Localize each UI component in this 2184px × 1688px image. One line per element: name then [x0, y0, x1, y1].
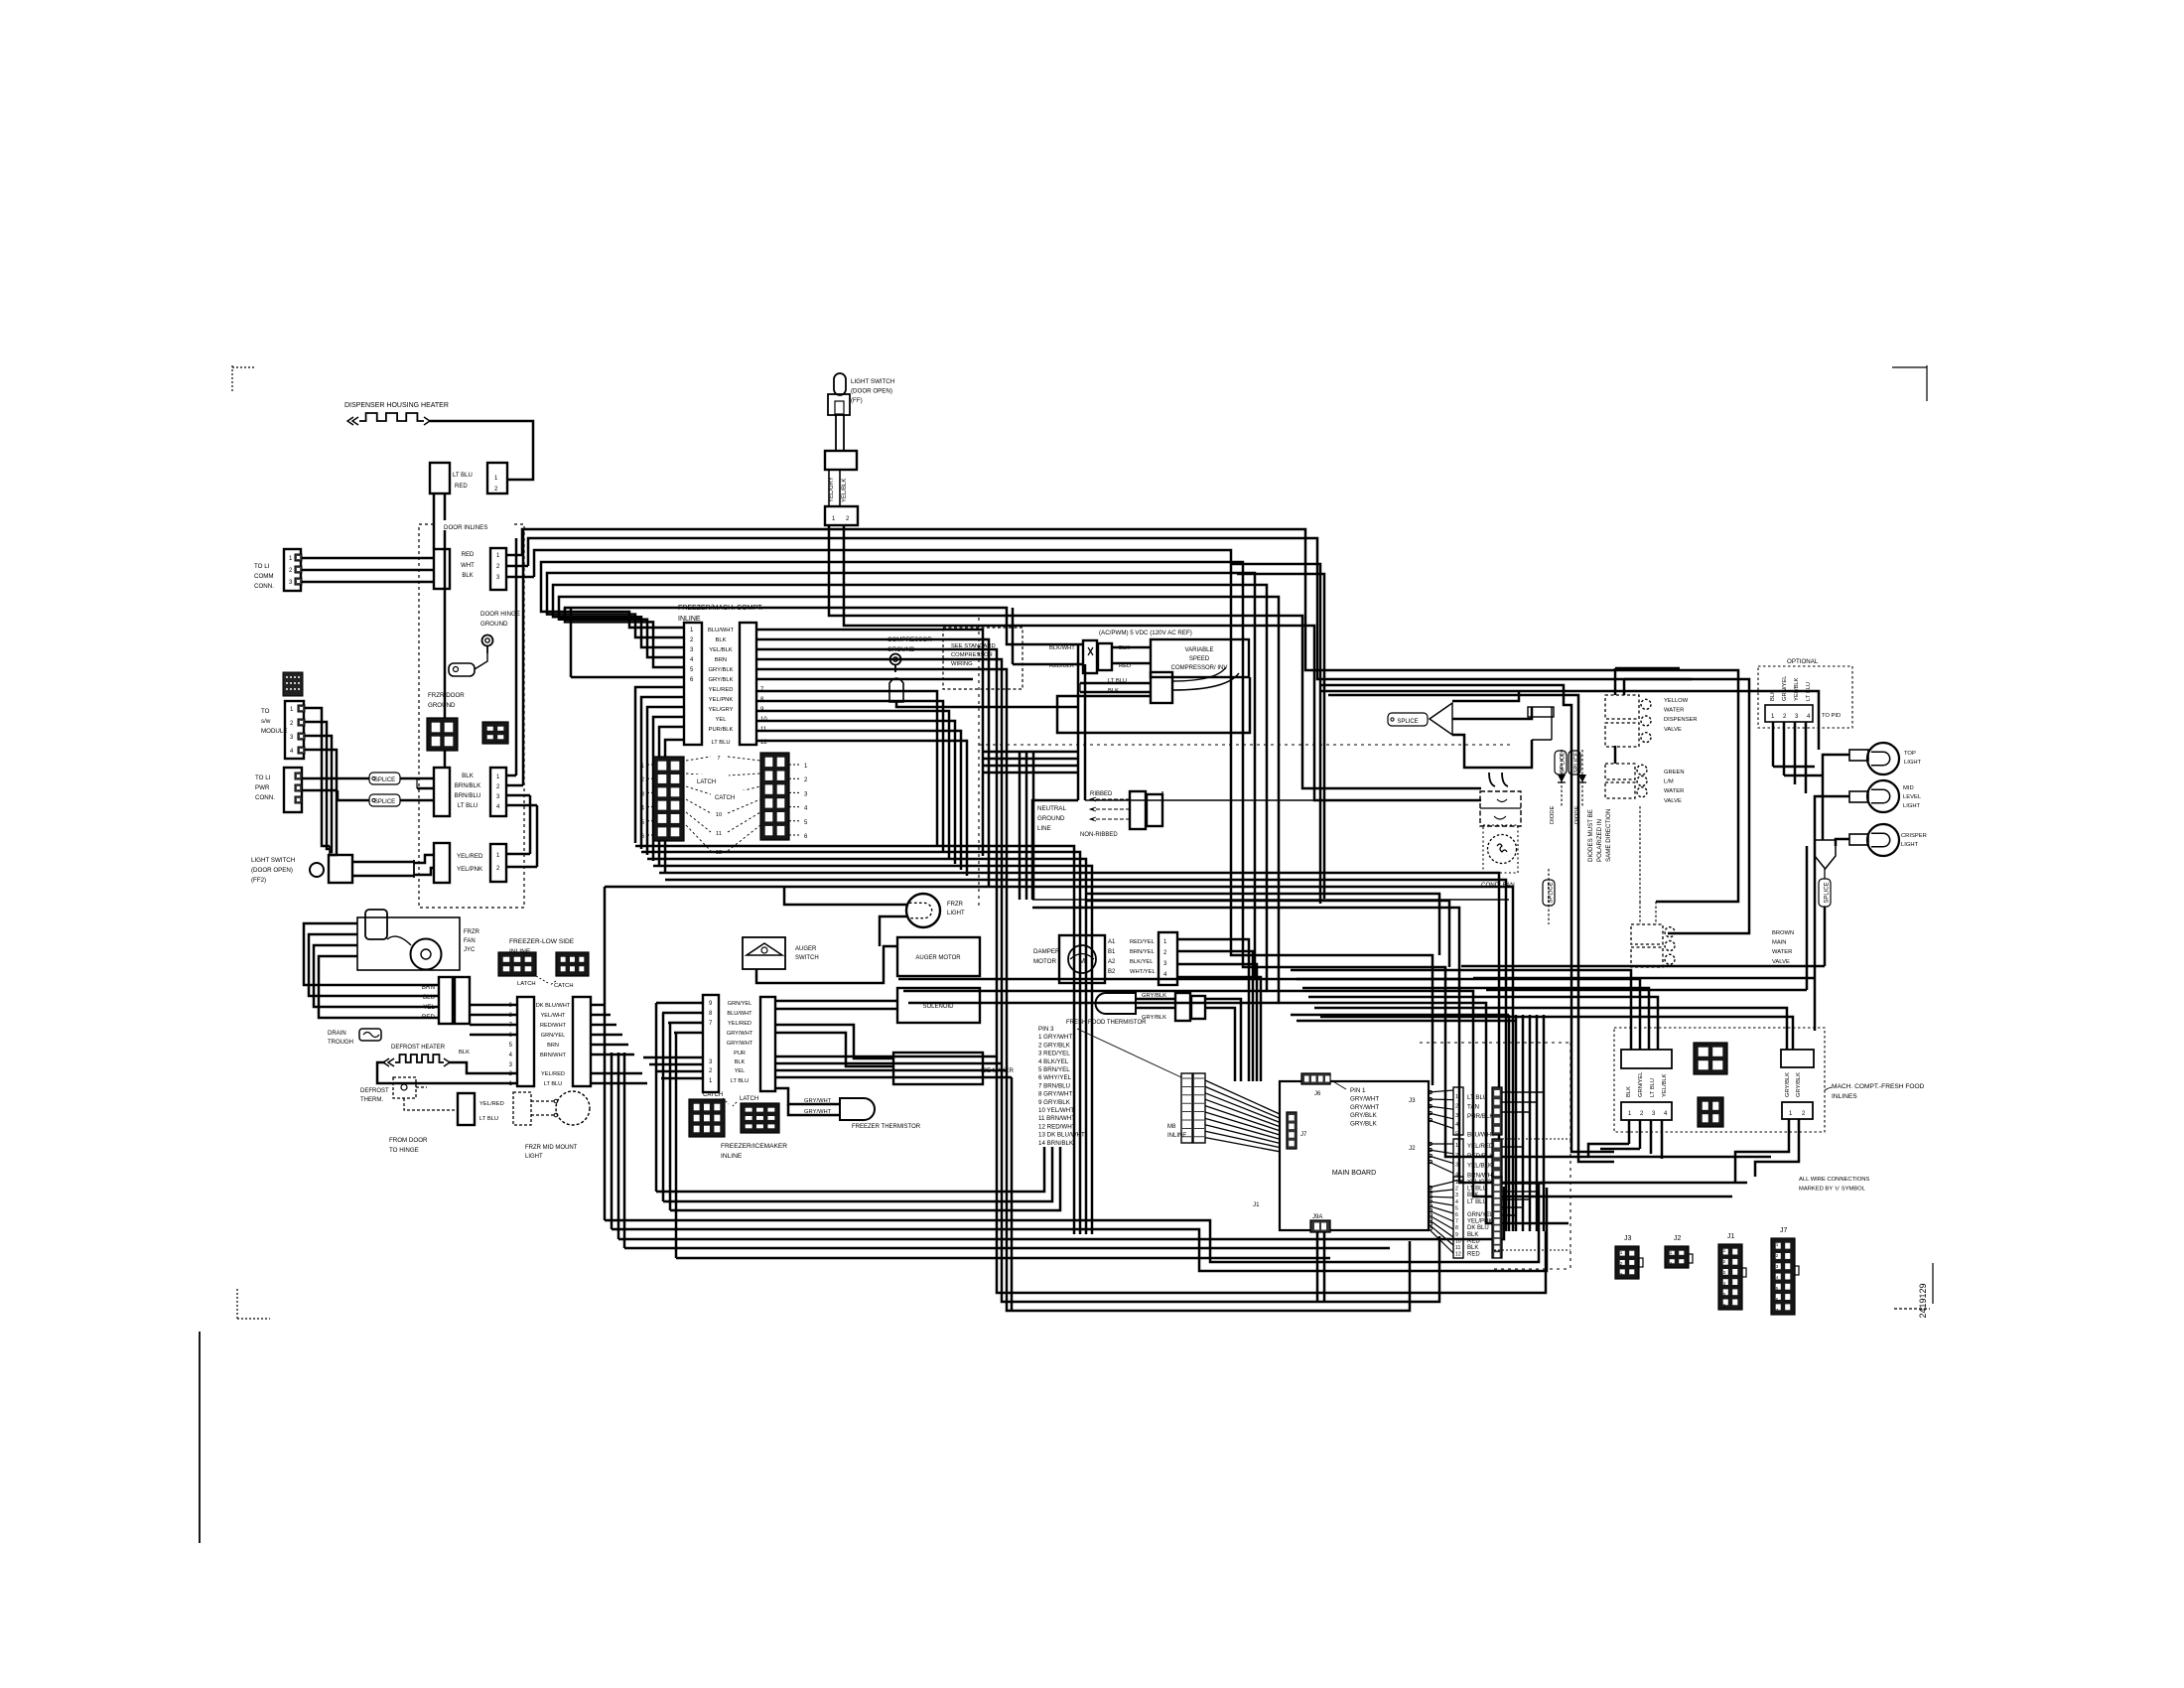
svg-text:10: 10 — [716, 812, 722, 818]
svg-text:PWR: PWR — [255, 784, 270, 791]
svg-text:SPLICE: SPLICE — [1574, 752, 1580, 773]
svg-text:6: 6 — [1455, 1212, 1458, 1218]
svg-text:BRN: BRN — [715, 657, 727, 663]
svg-text:LT BLU: LT BLU — [1650, 1078, 1656, 1097]
svg-text:POLARIZED IN: POLARIZED IN — [1596, 819, 1603, 862]
svg-text:MAIN BOARD: MAIN BOARD — [1332, 1170, 1376, 1177]
svg-text:(DOOR OPEN): (DOOR OPEN) — [851, 388, 892, 395]
svg-text:13 DK BLU/WHT: 13 DK BLU/WHT — [1038, 1132, 1085, 1139]
svg-text:10 YEL/WHT: 10 YEL/WHT — [1038, 1107, 1074, 1114]
svg-text:3 RED/YEL: 3 RED/YEL — [1038, 1051, 1070, 1057]
svg-text:PUR: PUR — [734, 1051, 746, 1056]
svg-text:DEFROST HEATER: DEFROST HEATER — [391, 1045, 446, 1051]
svg-text:GRY/BLK: GRY/BLK — [1785, 1072, 1791, 1097]
svg-text:SPLICE: SPLICE — [1561, 752, 1567, 773]
svg-text:FRESH FOOD THERMISTOR: FRESH FOOD THERMISTOR — [1066, 1020, 1147, 1026]
svg-text:INLINE: INLINE — [721, 1153, 743, 1160]
svg-text:BROWN: BROWN — [1772, 930, 1794, 936]
svg-text:SAME DIRECTION: SAME DIRECTION — [1605, 809, 1612, 862]
svg-text:BLK: BLK — [1626, 1086, 1632, 1097]
svg-text:J7: J7 — [1300, 1132, 1307, 1138]
svg-text:WHT/YEL: WHT/YEL — [1130, 969, 1157, 975]
svg-text:LIGHT SWITCH: LIGHT SWITCH — [851, 378, 894, 385]
svg-text:CATCH: CATCH — [715, 795, 735, 801]
svg-text:YEL/BLK: YEL/BLK — [842, 479, 848, 502]
svg-text:5: 5 — [1455, 1205, 1458, 1211]
svg-text:BRN: BRN — [422, 984, 435, 991]
svg-text:LT BLU: LT BLU — [1467, 1094, 1487, 1101]
svg-text:WATER: WATER — [1664, 788, 1684, 794]
svg-text:FREEZER-LOW SIDE: FREEZER-LOW SIDE — [509, 938, 575, 945]
svg-text:LT BLU: LT BLU — [1467, 1199, 1487, 1205]
svg-text:RIBBED: RIBBED — [1090, 791, 1113, 797]
svg-text:BLK/YEL: BLK/YEL — [1130, 959, 1154, 965]
svg-text:B2: B2 — [1108, 969, 1116, 975]
svg-text:YEL/GRY: YEL/GRY — [829, 477, 835, 502]
svg-text:J6: J6 — [1314, 1091, 1321, 1097]
svg-text:BLU/WHT: BLU/WHT — [727, 1011, 752, 1017]
svg-text:GRN/YEL: GRN/YEL — [541, 1033, 566, 1039]
svg-text:FRZR MID MOUNT: FRZR MID MOUNT — [525, 1145, 578, 1151]
svg-text:BLU: BLU — [423, 994, 435, 1001]
svg-text:LT BLU: LT BLU — [479, 1116, 498, 1122]
svg-text:BLU/WHT: BLU/WHT — [1467, 1132, 1495, 1139]
svg-text:B1: B1 — [1108, 949, 1116, 955]
svg-text:FRZR: FRZR — [464, 929, 480, 935]
svg-text:YEL/RED: YEL/RED — [457, 853, 483, 860]
svg-text:FRZR: FRZR — [947, 902, 964, 908]
svg-text:9: 9 — [1455, 1232, 1458, 1238]
svg-text:AUGER: AUGER — [795, 946, 817, 952]
svg-text:SPEED: SPEED — [1189, 656, 1210, 662]
svg-text:RED/BLK: RED/BLK — [1467, 1153, 1494, 1160]
svg-text:3: 3 — [1455, 1193, 1458, 1198]
svg-text:GRY/WHT: GRY/WHT — [1350, 1095, 1379, 1102]
svg-text:WATER: WATER — [1772, 949, 1792, 955]
svg-text:LEVEL: LEVEL — [1903, 794, 1922, 800]
svg-text:5: 5 — [1455, 1132, 1458, 1138]
svg-text:A2: A2 — [1108, 959, 1116, 965]
svg-text:LIGHT: LIGHT — [1903, 803, 1921, 809]
svg-text:s/w: s/w — [261, 718, 271, 725]
svg-text:DOOR INLINES: DOOR INLINES — [444, 524, 487, 531]
svg-text:YEL: YEL — [423, 1004, 435, 1011]
svg-text:RED: RED — [1467, 1252, 1480, 1258]
svg-text:DISPENSER: DISPENSER — [1664, 717, 1698, 723]
svg-text:MID: MID — [1903, 785, 1914, 791]
svg-text:FROM DOOR: FROM DOOR — [389, 1137, 428, 1144]
svg-text:CATCH: CATCH — [554, 983, 574, 989]
svg-text:GRY/BLK: GRY/BLK — [1142, 1015, 1166, 1021]
svg-text:BRN/BLK: BRN/BLK — [455, 782, 481, 789]
svg-text:CRISPER: CRISPER — [1901, 833, 1927, 839]
svg-text:14 BRN/BLK: 14 BRN/BLK — [1038, 1140, 1074, 1147]
svg-text:J2: J2 — [1674, 1235, 1682, 1242]
svg-text:4 BLK/YEL: 4 BLK/YEL — [1038, 1058, 1069, 1065]
svg-text:YEL/RED: YEL/RED — [541, 1071, 565, 1077]
svg-text:YEL: YEL — [735, 1068, 746, 1074]
svg-text:SPLICE: SPLICE — [374, 777, 395, 783]
svg-text:YEL/PNK: YEL/PNK — [457, 866, 483, 873]
svg-text:YEL/BLK: YEL/BLK — [709, 647, 733, 653]
svg-text:GRY/WHT: GRY/WHT — [727, 1041, 753, 1047]
svg-text:BRN/YEL: BRN/YEL — [1130, 949, 1156, 955]
svg-text:GRY/BLK: GRY/BLK — [1796, 1072, 1802, 1097]
svg-text:MOTOR: MOTOR — [1033, 958, 1056, 965]
svg-text:INLINE: INLINE — [1167, 1133, 1186, 1139]
svg-text:MAIN: MAIN — [1772, 940, 1787, 946]
svg-text:BLK/WHT: BLK/WHT — [1049, 645, 1075, 651]
svg-text:FREEZER/ICEMAKER: FREEZER/ICEMAKER — [721, 1143, 787, 1150]
svg-text:GRN/YEL: GRN/YEL — [1638, 1071, 1644, 1097]
svg-text:SPLICE: SPLICE — [1397, 719, 1418, 725]
svg-text:RED: RED — [1467, 1238, 1480, 1244]
svg-text:BLK: BLK — [462, 773, 475, 779]
svg-text:TO: TO — [261, 708, 270, 715]
svg-text:VARIABLE: VARIABLE — [1185, 647, 1214, 653]
svg-text:LIGHT: LIGHT — [1904, 760, 1922, 766]
svg-text:J3: J3 — [1624, 1235, 1632, 1242]
svg-text:RED: RED — [462, 552, 475, 558]
svg-text:SWITCH: SWITCH — [795, 955, 819, 961]
svg-text:LIGHT SWITCH: LIGHT SWITCH — [251, 857, 295, 864]
svg-text:LATCH: LATCH — [517, 981, 536, 987]
svg-text:DRAIN: DRAIN — [328, 1031, 346, 1037]
svg-text:1: 1 — [1455, 1094, 1458, 1100]
svg-text:TO HINGE: TO HINGE — [389, 1147, 419, 1154]
svg-text:6 WHY/YEL: 6 WHY/YEL — [1038, 1074, 1072, 1081]
svg-text:7: 7 — [1455, 1219, 1458, 1225]
svg-text:THERM.: THERM. — [360, 1097, 383, 1103]
svg-text:YEL: YEL — [716, 717, 728, 723]
svg-text:SEE STANDARD: SEE STANDARD — [951, 643, 996, 649]
svg-text:NON-RIBBED: NON-RIBBED — [1080, 832, 1118, 838]
svg-text:BLK: BLK — [1467, 1232, 1478, 1238]
svg-text:1 GRY/WHT: 1 GRY/WHT — [1038, 1034, 1072, 1041]
svg-text:RED/YEL: RED/YEL — [1130, 939, 1156, 945]
svg-text:J7: J7 — [1780, 1227, 1788, 1234]
svg-text:YEL/BLK: YEL/BLK — [1467, 1163, 1493, 1170]
svg-text:YEL/BLK: YEL/BLK — [1662, 1073, 1668, 1097]
svg-text:LT BLU: LT BLU — [453, 473, 473, 479]
svg-text:DAMPER: DAMPER — [1033, 948, 1060, 955]
svg-text:1: 1 — [1455, 1143, 1458, 1149]
svg-text:DIODES MUST BE: DIODES MUST BE — [1587, 809, 1594, 862]
svg-text:LT BLU: LT BLU — [731, 1078, 749, 1084]
svg-text:GRY/WHT: GRY/WHT — [727, 1031, 753, 1037]
svg-text:YEL/PNK: YEL/PNK — [709, 697, 734, 703]
svg-text:VALVE: VALVE — [1664, 727, 1682, 733]
svg-text:RED: RED — [422, 1014, 436, 1021]
svg-text:A1: A1 — [1108, 939, 1116, 945]
svg-text:BRN: BRN — [547, 1043, 559, 1049]
svg-text:BLK: BLK — [462, 573, 473, 579]
svg-text:YEL/RED: YEL/RED — [709, 687, 734, 693]
svg-text:BRN/BLU: BRN/BLU — [455, 792, 481, 799]
svg-text:CATCH: CATCH — [703, 1092, 723, 1098]
svg-text:DOOR HINGE: DOOR HINGE — [480, 611, 520, 618]
svg-text:LIGHT: LIGHT — [947, 911, 965, 916]
svg-text:11: 11 — [1455, 1245, 1460, 1251]
svg-text:TO LI: TO LI — [254, 563, 270, 570]
svg-text:DISPENSER HOUSING HEATER: DISPENSER HOUSING HEATER — [344, 402, 449, 409]
svg-text:8 GRY/WHT: 8 GRY/WHT — [1038, 1091, 1072, 1098]
svg-text:GRN/YEL: GRN/YEL — [1782, 675, 1788, 701]
svg-text:COND. FAN: COND. FAN — [1481, 882, 1515, 889]
svg-text:LATCH: LATCH — [740, 1096, 758, 1102]
svg-text:DK BLU/WHT: DK BLU/WHT — [536, 1003, 571, 1009]
svg-text:RED/WHT: RED/WHT — [540, 1023, 567, 1029]
svg-text:BLK: BLK — [1467, 1193, 1478, 1198]
svg-text:BLK: BLK — [716, 637, 727, 643]
svg-text:WATER: WATER — [1664, 708, 1684, 714]
svg-text:LIGHT: LIGHT — [1901, 842, 1919, 848]
svg-text:BRN/WHT: BRN/WHT — [540, 1053, 567, 1058]
svg-text:2: 2 — [1455, 1187, 1458, 1193]
svg-text:GROUND: GROUND — [428, 702, 456, 709]
svg-text:CONN.: CONN. — [254, 583, 274, 590]
svg-text:1: 1 — [1455, 1180, 1458, 1186]
svg-text:YEL/BLK: YEL/BLK — [1794, 677, 1800, 701]
svg-text:BLU/WHT: BLU/WHT — [708, 628, 735, 633]
svg-text:SPLICE: SPLICE — [374, 799, 395, 805]
svg-text:GRY/WHT: GRY/WHT — [1350, 1104, 1379, 1111]
svg-text:DK BLU: DK BLU — [1467, 1225, 1489, 1231]
svg-text:GRY/BLK: GRY/BLK — [1350, 1112, 1378, 1119]
svg-text:SPLICE: SPLICE — [1825, 882, 1831, 903]
svg-text:GRN/YEL: GRN/YEL — [728, 1001, 752, 1007]
svg-text:CONN.: CONN. — [255, 794, 275, 801]
svg-text:(FF): (FF) — [851, 397, 863, 404]
svg-text:M8: M8 — [1167, 1124, 1176, 1130]
svg-text:LATCH: LATCH — [697, 779, 716, 785]
svg-text:WHT: WHT — [461, 563, 475, 569]
svg-text:AUGER MOTOR: AUGER MOTOR — [915, 955, 961, 961]
svg-text:12: 12 — [1455, 1252, 1461, 1258]
svg-text:INLINES: INLINES — [1832, 1093, 1857, 1100]
svg-text:VALVE: VALVE — [1772, 959, 1790, 965]
svg-text:5 BRN/YEL: 5 BRN/YEL — [1038, 1066, 1070, 1073]
svg-text:GREEN: GREEN — [1664, 770, 1685, 775]
svg-text:LT BLU: LT BLU — [544, 1081, 562, 1087]
svg-text:YEL/RED: YEL/RED — [479, 1101, 504, 1107]
svg-text:TOP: TOP — [1904, 751, 1916, 757]
svg-text:GROUND: GROUND — [480, 621, 508, 628]
svg-text:2 GRY/BLK: 2 GRY/BLK — [1038, 1042, 1071, 1049]
svg-text:YEL/GRY: YEL/GRY — [708, 707, 733, 713]
svg-text:PUR/BLK: PUR/BLK — [709, 727, 734, 733]
svg-text:SPLICE: SPLICE — [1549, 882, 1555, 903]
svg-text:LIGHT: LIGHT — [525, 1154, 543, 1160]
svg-text:L/M: L/M — [1664, 779, 1674, 785]
svg-text:FREEZER THERMISTOR: FREEZER THERMISTOR — [852, 1124, 921, 1130]
svg-text:FRZR DOOR: FRZR DOOR — [428, 692, 465, 699]
svg-text:FREEZER/MACH. COMPT.: FREEZER/MACH. COMPT. — [678, 605, 763, 612]
svg-text:(DOOR OPEN): (DOOR OPEN) — [251, 867, 293, 874]
svg-text:RED: RED — [455, 484, 468, 490]
svg-text:OPTIONAL: OPTIONAL — [1787, 658, 1819, 665]
svg-text:2419129: 2419129 — [1918, 1283, 1928, 1318]
svg-text:LT BLU: LT BLU — [1467, 1187, 1487, 1193]
svg-text:10: 10 — [1455, 1238, 1461, 1244]
svg-text:J3: J3 — [1409, 1097, 1416, 1104]
svg-text:7: 7 — [717, 756, 720, 762]
svg-text:4: 4 — [1455, 1199, 1458, 1205]
svg-text:YEL/PNK: YEL/PNK — [1467, 1219, 1492, 1225]
svg-text:YEL/RED: YEL/RED — [1467, 1143, 1494, 1150]
svg-text:YEL/WHT: YEL/WHT — [541, 1013, 566, 1019]
svg-text:M: M — [1079, 958, 1085, 965]
svg-text:2: 2 — [1455, 1153, 1458, 1159]
svg-text:4: 4 — [1455, 1122, 1458, 1128]
svg-text:LT BLU: LT BLU — [711, 740, 730, 746]
svg-text:TO LI: TO LI — [255, 774, 271, 781]
svg-text:8: 8 — [1455, 1225, 1458, 1231]
svg-text:7 BRN/BLU: 7 BRN/BLU — [1038, 1082, 1070, 1089]
svg-text:MARKED BY 'o' SYMBOL: MARKED BY 'o' SYMBOL — [1799, 1187, 1866, 1193]
svg-text:YEL/GRY: YEL/GRY — [1467, 1180, 1493, 1186]
svg-text:BLK: BLK — [1770, 690, 1776, 701]
svg-text:(AC/PWM) 5 VDC (120V AC REF): (AC/PWM) 5 VDC (120V AC REF) — [1099, 630, 1192, 636]
svg-text:GRY/BLK: GRY/BLK — [708, 677, 733, 683]
svg-text:3: 3 — [1455, 1163, 1458, 1169]
svg-text:BLK: BLK — [1467, 1245, 1478, 1251]
svg-text:FAN: FAN — [464, 938, 476, 944]
svg-text:2: 2 — [1455, 1103, 1458, 1109]
svg-text:PIN 1: PIN 1 — [1350, 1087, 1366, 1094]
svg-text:GRY/BLK: GRY/BLK — [1350, 1121, 1378, 1128]
svg-text:12 RED/WHT: 12 RED/WHT — [1038, 1123, 1076, 1130]
svg-text:J1: J1 — [1253, 1201, 1260, 1208]
svg-text:WIRING: WIRING — [951, 661, 973, 667]
svg-text:COMPRESSOR/ INV: COMPRESSOR/ INV — [1171, 665, 1228, 671]
svg-text:TAN: TAN — [1467, 1103, 1479, 1110]
svg-text:3: 3 — [1455, 1113, 1458, 1119]
svg-text:COMPRESSOR: COMPRESSOR — [951, 652, 993, 658]
svg-text:11: 11 — [716, 831, 722, 837]
svg-text:GRN/YEL: GRN/YEL — [1467, 1212, 1494, 1218]
svg-text:(FF2): (FF2) — [251, 877, 266, 884]
svg-text:PIN 3: PIN 3 — [1038, 1026, 1054, 1033]
svg-text:COMM: COMM — [254, 573, 274, 580]
svg-text:LT BLU: LT BLU — [1806, 682, 1812, 701]
svg-text:TO PID: TO PID — [1822, 713, 1841, 719]
svg-text:PUR/BLK: PUR/BLK — [1467, 1113, 1494, 1120]
svg-text:11 BRN/WHT: 11 BRN/WHT — [1038, 1115, 1075, 1122]
svg-text:DIODE: DIODE — [1574, 806, 1580, 824]
svg-text:9 GRY/BLK: 9 GRY/BLK — [1038, 1099, 1071, 1106]
svg-text:TROUGH: TROUGH — [328, 1040, 353, 1046]
svg-text:GRY/BLK: GRY/BLK — [708, 667, 733, 673]
svg-text:VALVE: VALVE — [1664, 798, 1682, 804]
svg-text:LINE: LINE — [1037, 825, 1051, 832]
svg-text:J1: J1 — [1727, 1233, 1735, 1240]
svg-text:GROUND: GROUND — [887, 646, 915, 653]
svg-text:YEL/RED: YEL/RED — [728, 1021, 751, 1027]
svg-text:RED/BLK: RED/BLK — [1049, 663, 1074, 669]
svg-text:LT BLU: LT BLU — [458, 802, 478, 809]
svg-text:COMPRESSOR: COMPRESSOR — [887, 636, 932, 643]
svg-text:DEFROST: DEFROST — [360, 1088, 389, 1094]
svg-text:DIODE: DIODE — [1550, 806, 1556, 824]
svg-text:SOLENOID: SOLENOID — [922, 1004, 954, 1010]
svg-text:MACH. COMPT.-FRESH FOOD: MACH. COMPT.-FRESH FOOD — [1832, 1083, 1925, 1090]
svg-text:YELLOW: YELLOW — [1664, 698, 1689, 704]
svg-text:JYC: JYC — [464, 947, 476, 953]
svg-text:GROUND: GROUND — [1037, 815, 1065, 822]
svg-text:J9A: J9A — [1312, 1214, 1322, 1220]
svg-text:BLK: BLK — [735, 1059, 746, 1065]
svg-text:BLK: BLK — [459, 1050, 470, 1055]
svg-text:MODULE: MODULE — [261, 728, 287, 735]
svg-text:NEUTRAL: NEUTRAL — [1037, 805, 1066, 812]
svg-text:ALL WIRE CONNECTIONS: ALL WIRE CONNECTIONS — [1799, 1177, 1869, 1183]
svg-text:J2: J2 — [1409, 1145, 1416, 1152]
